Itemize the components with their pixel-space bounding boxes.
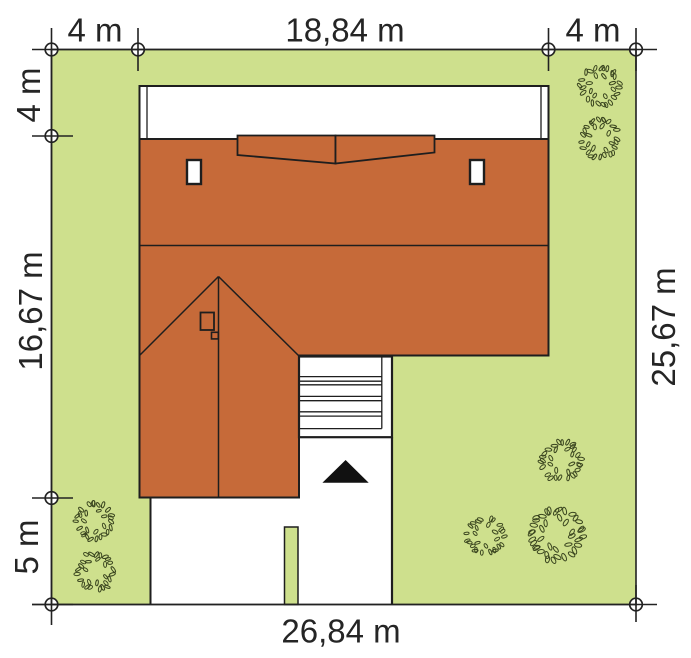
svg-text:4 m: 4 m [10,67,47,122]
svg-text:26,84 m: 26,84 m [281,613,400,650]
svg-text:5 m: 5 m [8,519,45,574]
svg-text:4 m: 4 m [565,12,620,49]
svg-text:16,67 m: 16,67 m [12,251,49,370]
svg-text:18,84 m: 18,84 m [285,12,404,49]
svg-text:25,67 m: 25,67 m [645,267,682,386]
svg-text:4 m: 4 m [67,12,122,49]
